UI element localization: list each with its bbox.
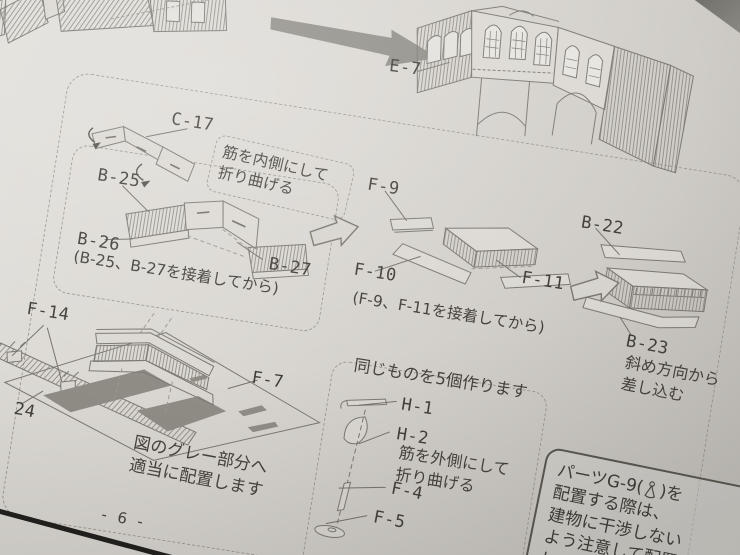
caution-box: パーツG-9( )を 配置する際は、 建物に干渉しない よう注意して配置 します [519,446,740,555]
part-label-f24: 24 [12,401,36,422]
part-label-f9: F-9 [366,177,400,199]
instruction-sheet-photo: E-7 C-17 B-25 B-26 B-27 F-9 F-10 F-11 B-… [0,0,740,555]
part-label-f7: F-7 [250,370,284,392]
part-label-e7: E-7 [388,58,422,79]
part-label-h1: H-1 [400,397,434,419]
previous-step-buildings-drawing [0,0,229,77]
paper-page: E-7 C-17 B-25 B-26 B-27 F-9 F-10 F-11 B-… [0,0,740,555]
